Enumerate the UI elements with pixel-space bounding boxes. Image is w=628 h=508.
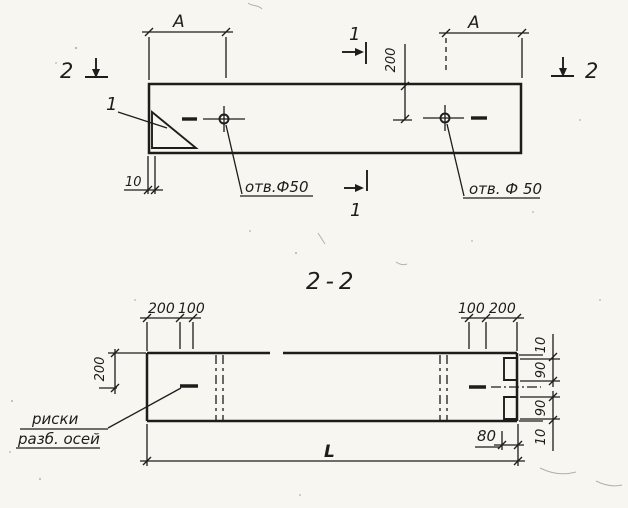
hole-right: [423, 105, 487, 131]
dim-label: 90: [534, 362, 549, 379]
axis-note-line1: риски: [31, 410, 79, 428]
dim-label: А: [172, 12, 185, 32]
section-number: 1: [349, 24, 360, 45]
dim-label: А: [467, 13, 480, 33]
section-mark-1-bottom: 1: [344, 170, 367, 221]
corner-detail-label: 1: [106, 94, 117, 115]
section-mark-2-right: 2: [551, 57, 598, 83]
drawing-canvas: 1 отв.Ф50 отв. Ф 50: [0, 0, 628, 508]
technical-drawing-sheet: 1 отв.Ф50 отв. Ф 50: [0, 0, 628, 508]
dimension-length: L: [140, 424, 525, 466]
notch-lower: [504, 397, 517, 419]
hole-label-left: отв.Ф50: [226, 125, 313, 196]
dim-label: 100: [178, 301, 205, 317]
dim-label: 10: [534, 429, 549, 446]
hole-diameter-label: отв. Ф 50: [469, 180, 542, 198]
hole-diameter-label: отв.Ф50: [245, 178, 309, 196]
section-number: 2: [60, 59, 73, 83]
dimension-10-edge: 10: [124, 156, 163, 194]
dim-label: L: [324, 442, 335, 462]
leader-line: [447, 124, 464, 196]
arrow-right-icon: [355, 184, 364, 192]
hole-left: [182, 106, 245, 132]
section-number: 1: [350, 200, 361, 221]
callout-leader-line: [118, 112, 167, 128]
plan-view: 1 отв.Ф50 отв. Ф 50: [60, 12, 598, 221]
corner-detail-callout: 1: [106, 94, 167, 128]
dim-label: 200: [148, 301, 175, 317]
dim-label: 10: [534, 337, 549, 354]
dimension-200-axis-offset: 200: [93, 349, 146, 394]
dim-label: 200: [384, 48, 399, 73]
end-notches: [504, 358, 517, 419]
joint-lines-left: [216, 355, 223, 420]
dimension-a-right: А: [439, 13, 529, 78]
dim-label: 10: [125, 175, 142, 190]
dim-label: 80: [477, 427, 496, 445]
arrow-right-icon: [355, 48, 364, 56]
dimension-top-right: 100 200: [458, 301, 524, 351]
dim-label: 90: [534, 400, 549, 417]
section-number: 2: [585, 59, 598, 83]
section-mark-2-left: 2: [60, 58, 108, 83]
dimension-80: 80: [475, 424, 524, 466]
dim-label: 200: [93, 357, 108, 382]
axis-scribe-note: риски разб. осей: [16, 386, 198, 448]
notch-upper: [504, 358, 517, 380]
axis-note-line2: разб. осей: [17, 430, 100, 448]
section-title: 2-2: [306, 269, 359, 295]
dimension-top-left: 200 100: [140, 301, 205, 351]
dimension-right-lower: 90 10: [519, 391, 560, 451]
joint-lines-right: [440, 355, 447, 420]
leader-line: [226, 125, 242, 194]
section-beam-outline: [147, 353, 517, 421]
dimension-a-left: А: [142, 12, 233, 80]
hole-label-right: отв. Ф 50: [447, 124, 542, 198]
section-mark-1-top: 1: [342, 24, 366, 64]
dim-label: 100: [458, 301, 485, 317]
section-view: 2-2 200 100: [16, 269, 560, 466]
dim-label: 200: [489, 301, 516, 317]
dimension-right-upper: 10 90: [519, 334, 560, 387]
